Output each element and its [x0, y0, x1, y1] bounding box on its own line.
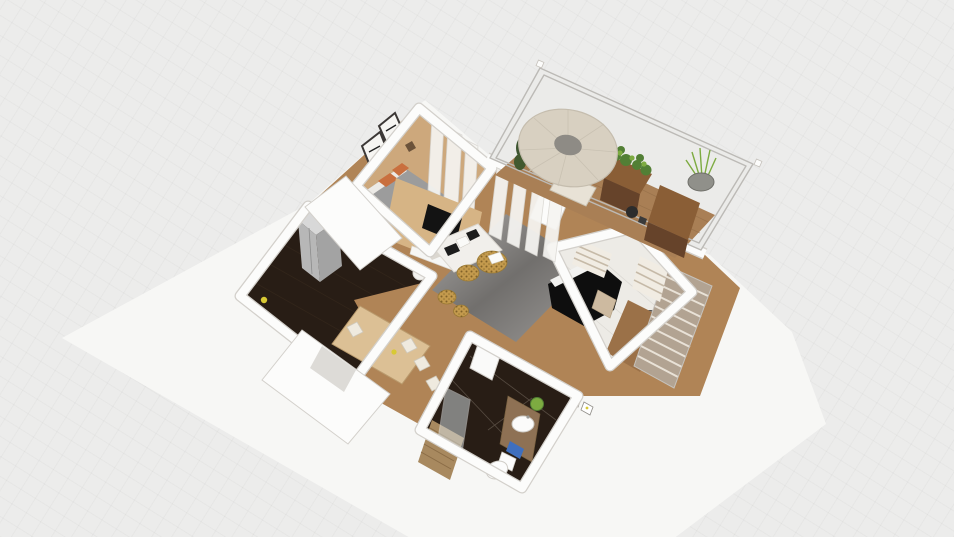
floorplan-canvas[interactable] — [0, 0, 954, 537]
pouf-pattern — [457, 265, 479, 281]
railing-post — [536, 60, 544, 68]
table-decor-yellow[interactable] — [391, 349, 396, 354]
potted-plant[interactable] — [531, 398, 544, 411]
railing-post — [754, 159, 762, 167]
pouf-pattern — [438, 290, 456, 304]
yellow-floor-item[interactable] — [261, 297, 267, 303]
vessel-sink[interactable] — [512, 416, 534, 432]
pouf-pattern — [454, 305, 469, 317]
faucet — [526, 415, 529, 418]
